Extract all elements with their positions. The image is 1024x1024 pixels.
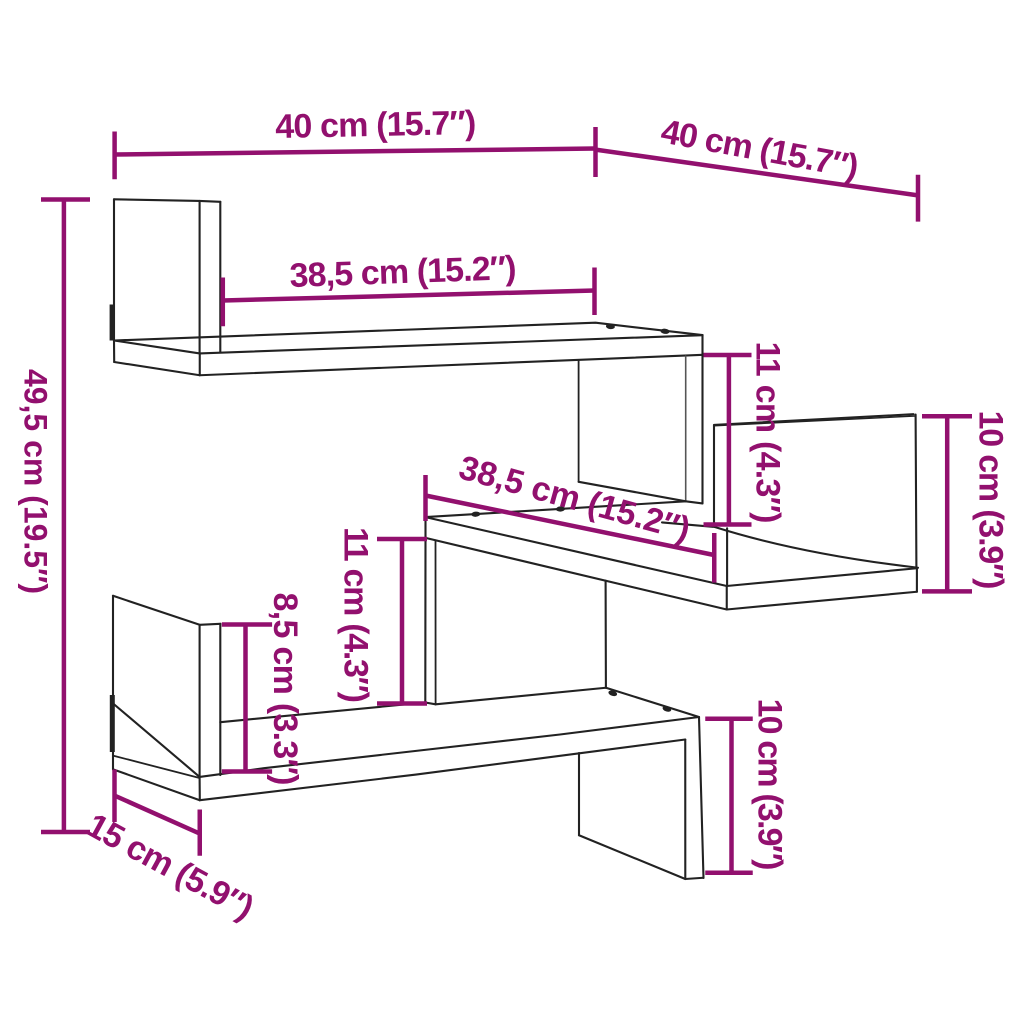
svg-text:38,5 cm (15.2″): 38,5 cm (15.2″) [289,249,517,295]
svg-text:10 cm (3.9″): 10 cm (3.9″) [750,699,788,871]
svg-text:49,5 cm (19.5″): 49,5 cm (19.5″) [18,369,54,594]
svg-text:10 cm (3.9″): 10 cm (3.9″) [971,411,1009,590]
svg-text:8,5 cm (3.3″): 8,5 cm (3.3″) [266,593,304,786]
svg-text:11 cm (4.3″): 11 cm (4.3″) [337,527,375,703]
svg-text:40 cm (15.7″): 40 cm (15.7″) [275,104,477,146]
svg-text:11 cm (4.3″): 11 cm (4.3″) [749,342,787,524]
